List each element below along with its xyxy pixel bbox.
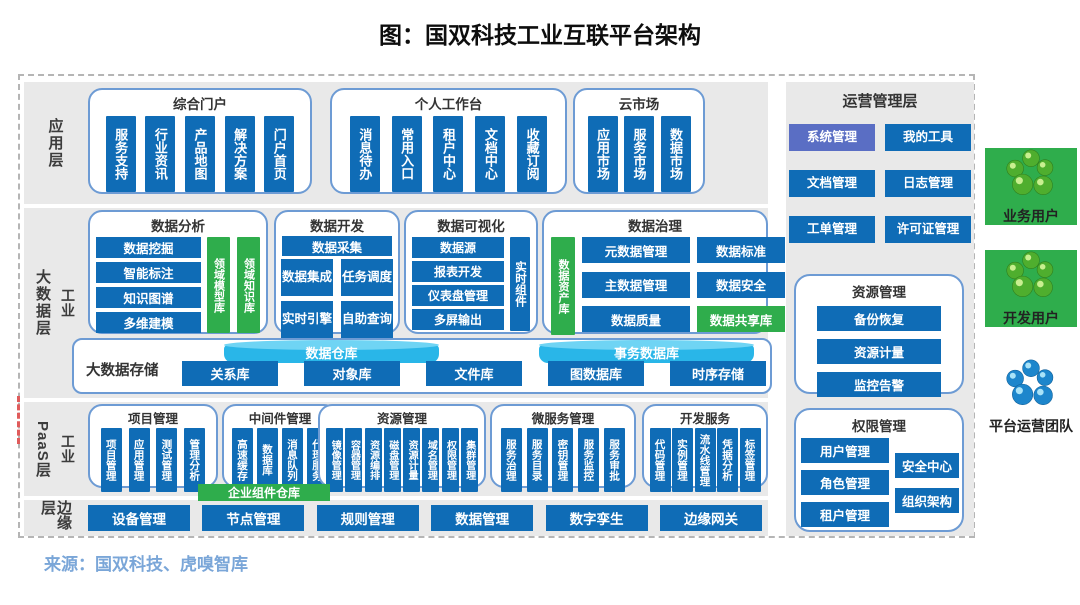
domain-library-item: 领域知识库 xyxy=(237,237,260,333)
ops-button: 日志管理 xyxy=(885,170,971,197)
application-layer-row: 应用层 综合门户 服务支持行业资讯产品地图解决方案门户首页 个人工作台 消息待办… xyxy=(24,82,768,204)
data-warehouse-cylinder: 数据仓库 xyxy=(224,345,439,363)
users-cluster-icon xyxy=(1003,148,1059,204)
users-cluster-icon xyxy=(1003,250,1059,306)
data-viz-items: 数据源报表开发仪表盘管理多屏输出 xyxy=(412,237,504,331)
workbench-item: 租户中心 xyxy=(433,116,463,192)
edge-item: 规则管理 xyxy=(317,505,419,531)
ops-management-panel: 运营管理层 系统管理我的工具文档管理日志管理工单管理许可证管理 资源管理 备份恢… xyxy=(786,82,974,536)
ops-resource-items: 备份恢复资源计量监控告警 xyxy=(796,306,962,397)
portal-item: 产品地图 xyxy=(185,116,215,192)
workbench-item: 收藏订阅 xyxy=(517,116,547,192)
middleware-item: 高速缓存 xyxy=(232,428,253,492)
data-viz-item: 报表开发 xyxy=(412,261,504,282)
resource-mgmt-item: 磁盘管理 xyxy=(384,428,401,492)
ops-button: 工单管理 xyxy=(789,216,875,243)
paas-layer-row: PaaS层 工业 项目管理 项目管理应用管理测试管理管理分析 中间件管理 高速缓… xyxy=(24,402,768,496)
user-group-label: 业务用户 xyxy=(1003,207,1059,225)
storage-items: 关系库对象库文件库图数据库时序存储 xyxy=(182,361,766,386)
dev-service-item: 代码管理 xyxy=(650,428,671,492)
section-title: 数据开发 xyxy=(276,212,398,235)
ops-resource-box: 资源管理 备份恢复资源计量监控告警 xyxy=(794,274,964,394)
layer-label-text: 边缘层 xyxy=(39,500,71,536)
ops-button: 许可证管理 xyxy=(885,216,971,243)
workbench-items: 消息待办常用入口租户中心文档中心收藏订阅 xyxy=(332,113,565,195)
microservice-item: 密钥管理 xyxy=(552,428,573,492)
user-group-label: 平台运营团队 xyxy=(989,417,1073,435)
permission-item: 用户管理 xyxy=(801,438,889,463)
resource-mgmt-item: 集群管理 xyxy=(461,428,478,492)
portal-item: 服务支持 xyxy=(106,116,136,192)
cloud-market-items: 应用市场服务市场数据市场 xyxy=(575,113,703,195)
cloud-market-item: 应用市场 xyxy=(588,116,618,192)
section-cloud-market: 云市场 应用市场服务市场数据市场 xyxy=(573,88,705,194)
layer-label-text: PaaS层 xyxy=(32,421,53,478)
permission-item: 组织架构 xyxy=(895,488,959,513)
project-mgmt-item: 管理分析 xyxy=(184,428,205,492)
ops-button: 文档管理 xyxy=(789,170,875,197)
data-analysis-item: 智能标注 xyxy=(96,262,201,283)
microservice-item: 服务监控 xyxy=(578,428,599,492)
edge-item: 边缘网关 xyxy=(660,505,762,531)
ops-panel-title: 运营管理层 xyxy=(786,82,974,111)
data-viz-item: 数据源 xyxy=(412,237,504,258)
section-title: 资源管理 xyxy=(320,406,484,427)
storage-item: 图数据库 xyxy=(548,361,644,386)
layer-label-text: 大数据层 xyxy=(32,269,53,337)
ops-resource-item: 监控告警 xyxy=(817,372,941,397)
edge-layer-row: 边缘层 设备管理节点管理规则管理数据管理数字孪生边缘网关 xyxy=(24,500,768,536)
project-mgmt-item: 测试管理 xyxy=(156,428,177,492)
microservice-item: 服务审批 xyxy=(604,428,625,492)
data-dev-item: 任务调度 xyxy=(341,259,393,296)
layer-label-paas: PaaS层 工业 xyxy=(24,402,86,496)
permission-item: 租户管理 xyxy=(801,502,889,527)
cloud-market-item: 服务市场 xyxy=(624,116,654,192)
portal-item: 行业资讯 xyxy=(145,116,175,192)
data-gov-item: 数据标准 xyxy=(697,237,785,263)
middleware-item: 数据库 xyxy=(257,428,278,492)
data-dev-item: 数据集成 xyxy=(281,259,333,296)
edge-item: 节点管理 xyxy=(202,505,304,531)
section-data-visualization: 数据可视化 数据源报表开发仪表盘管理多屏输出 实时组件 xyxy=(404,210,538,334)
data-analysis-item: 多维建模 xyxy=(96,312,201,333)
data-asset-library-box: 数据资产库 xyxy=(551,237,575,335)
resource-mgmt-item: 镜像管理 xyxy=(326,428,343,492)
section-microservice-mgmt: 微服务管理 服务治理服务目录密钥管理服务监控服务审批 xyxy=(490,404,636,488)
layer-label-app: 应用层 xyxy=(24,82,86,204)
resource-mgmt-item: 资源编排 xyxy=(365,428,382,492)
portal-item: 门户首页 xyxy=(264,116,294,192)
ops-permission-box: 权限管理 用户管理角色管理租户管理 安全中心组织架构 xyxy=(794,408,964,532)
section-title: 数据分析 xyxy=(90,212,266,235)
data-gov-item: 数据质量 xyxy=(582,306,690,332)
storage-item: 时序存储 xyxy=(670,361,766,386)
resource-mgmt-item: 容器管理 xyxy=(345,428,362,492)
section-data-governance: 数据治理 数据资产库 元数据管理数据标准主数据管理数据安全数据质量数据共享库 xyxy=(542,210,768,334)
section-title: 微服务管理 xyxy=(492,406,634,427)
workbench-item: 消息待办 xyxy=(350,116,380,192)
domain-knowledge-items: 领域模型库领域知识库 xyxy=(207,237,260,333)
users-cluster-icon xyxy=(1003,358,1059,414)
storage-label: 大数据存储 xyxy=(86,359,159,380)
dev-service-item: 凭据分析 xyxy=(717,428,738,492)
cloud-market-item: 数据市场 xyxy=(661,116,691,192)
layer-sublabel-text: 工业 xyxy=(58,288,78,318)
architecture-diagram: 应用层 综合门户 服务支持行业资讯产品地图解决方案门户首页 个人工作台 消息待办… xyxy=(18,74,975,538)
data-dev-grid: 数据集成任务调度实时引擎自助查询 xyxy=(276,259,398,338)
resource-mgmt-items: 镜像管理容器管理资源编排磁盘管理资源计量域名管理权限管理集群管理 xyxy=(320,427,484,493)
data-gov-item: 数据安全 xyxy=(697,272,785,298)
section-data-analysis: 数据分析 数据挖掘智能标注知识图谱多维建模 领域模型库领域知识库 xyxy=(88,210,268,334)
data-gov-item: 数据共享库 xyxy=(697,306,785,332)
section-title: 数据治理 xyxy=(544,212,766,235)
section-title: 云市场 xyxy=(575,90,703,113)
permission-item: 角色管理 xyxy=(801,470,889,495)
storage-item: 文件库 xyxy=(426,361,522,386)
cylinder-label: 事务数据库 xyxy=(539,345,754,362)
enterprise-component-repo: 企业组件仓库 xyxy=(198,484,330,501)
ops-resource-item: 备份恢复 xyxy=(817,306,941,331)
cylinder-label: 数据仓库 xyxy=(224,345,439,362)
red-dash-decoration xyxy=(17,396,20,444)
middleware-item: 消息队列 xyxy=(282,428,303,492)
dev-service-item: 标签管理 xyxy=(740,428,761,492)
edge-item: 数据管理 xyxy=(431,505,533,531)
source-attribution: 来源：国双科技、虎嗅智库 xyxy=(44,550,248,575)
dev-service-item: 流水线管理 xyxy=(695,428,716,492)
data-analysis-body: 数据挖掘智能标注知识图谱多维建模 领域模型库领域知识库 xyxy=(90,235,266,335)
edge-item: 设备管理 xyxy=(88,505,190,531)
data-gov-grid: 元数据管理数据标准主数据管理数据安全数据质量数据共享库 xyxy=(582,237,785,335)
section-title: 开发服务 xyxy=(644,406,766,427)
permission-right-items: 安全中心组织架构 xyxy=(895,453,959,527)
portal-items: 服务支持行业资讯产品地图解决方案门户首页 xyxy=(90,113,310,195)
edge-items: 设备管理节点管理规则管理数据管理数字孪生边缘网关 xyxy=(88,505,762,531)
microservice-item: 服务目录 xyxy=(527,428,548,492)
dev-service-items: 代码管理实例管理流水线管理凭据分析标签管理 xyxy=(644,427,766,493)
section-title: 综合门户 xyxy=(90,90,310,113)
ops-resource-item: 资源计量 xyxy=(817,339,941,364)
project-mgmt-item: 应用管理 xyxy=(129,428,150,492)
section-title: 资源管理 xyxy=(796,276,962,301)
section-title: 个人工作台 xyxy=(332,90,565,113)
ops-button: 系统管理 xyxy=(789,124,875,151)
data-gov-item: 主数据管理 xyxy=(582,272,690,298)
platform-ops-team: 平台运营团队 xyxy=(985,358,1077,435)
data-dev-item: 自助查询 xyxy=(341,301,393,338)
domain-library-item: 领域模型库 xyxy=(207,237,230,333)
project-mgmt-item: 项目管理 xyxy=(101,428,122,492)
transaction-db-cylinder: 事务数据库 xyxy=(539,345,754,363)
section-title: 权限管理 xyxy=(796,410,962,435)
ops-buttons: 系统管理我的工具文档管理日志管理工单管理许可证管理 xyxy=(786,124,974,243)
data-gov-body: 数据资产库 元数据管理数据标准主数据管理数据安全数据质量数据共享库 xyxy=(544,235,766,337)
permission-left-items: 用户管理角色管理租户管理 xyxy=(801,438,889,527)
edge-item: 数字孪生 xyxy=(546,505,648,531)
workbench-item: 文档中心 xyxy=(475,116,505,192)
data-viz-item: 仪表盘管理 xyxy=(412,285,504,306)
data-analysis-items: 数据挖掘智能标注知识图谱多维建模 xyxy=(96,237,201,333)
data-collection-box: 数据采集 xyxy=(282,236,392,256)
storage-item: 对象库 xyxy=(304,361,400,386)
developer-users: 开发用户 xyxy=(985,250,1077,327)
layer-sublabel-text: 工业 xyxy=(58,434,78,464)
portal-item: 解决方案 xyxy=(225,116,255,192)
section-data-development: 数据开发 数据采集 数据集成任务调度实时引擎自助查询 xyxy=(274,210,400,334)
ops-button: 我的工具 xyxy=(885,124,971,151)
section-bigdata-storage: 大数据存储 数据仓库 事务数据库 关系库对象库文件库图数据库时序存储 xyxy=(72,338,772,394)
data-gov-item: 元数据管理 xyxy=(582,237,690,263)
user-group-label: 开发用户 xyxy=(1003,309,1059,327)
bigdata-layer-row: 大数据层 工业 数据分析 数据挖掘智能标注知识图谱多维建模 领域模型库领域知识库… xyxy=(24,208,768,398)
section-resource-mgmt-paas: 资源管理 镜像管理容器管理资源编排磁盘管理资源计量域名管理权限管理集群管理 xyxy=(318,404,486,488)
resource-mgmt-item: 权限管理 xyxy=(442,428,459,492)
data-analysis-item: 数据挖掘 xyxy=(96,237,201,258)
data-viz-body: 数据源报表开发仪表盘管理多屏输出 实时组件 xyxy=(406,235,536,333)
workbench-item: 常用入口 xyxy=(392,116,422,192)
section-dev-services: 开发服务 代码管理实例管理流水线管理凭据分析标签管理 xyxy=(642,404,768,488)
section-title: 数据可视化 xyxy=(406,212,536,235)
dev-service-item: 实例管理 xyxy=(672,428,693,492)
resource-mgmt-item: 资源计量 xyxy=(403,428,420,492)
realtime-component-box: 实时组件 xyxy=(510,237,530,331)
layer-label-edge: 边缘层 xyxy=(24,500,86,536)
section-title: 项目管理 xyxy=(90,406,216,427)
data-dev-item: 实时引擎 xyxy=(281,301,333,338)
data-viz-item: 多屏输出 xyxy=(412,309,504,330)
microservice-items: 服务治理服务目录密钥管理服务监控服务审批 xyxy=(492,427,634,493)
data-analysis-item: 知识图谱 xyxy=(96,287,201,308)
resource-mgmt-item: 域名管理 xyxy=(422,428,439,492)
section-workbench: 个人工作台 消息待办常用入口租户中心文档中心收藏订阅 xyxy=(330,88,567,194)
page-title: 图：国双科技工业互联平台架构 xyxy=(0,16,1080,50)
section-project-mgmt: 项目管理 项目管理应用管理测试管理管理分析 xyxy=(88,404,218,488)
permission-columns: 用户管理角色管理租户管理 安全中心组织架构 xyxy=(796,435,962,530)
business-users: 业务用户 xyxy=(985,148,1077,225)
microservice-item: 服务治理 xyxy=(501,428,522,492)
permission-item: 安全中心 xyxy=(895,453,959,478)
section-portal: 综合门户 服务支持行业资讯产品地图解决方案门户首页 xyxy=(88,88,312,194)
storage-item: 关系库 xyxy=(182,361,278,386)
layer-label-text: 应用层 xyxy=(45,118,66,169)
